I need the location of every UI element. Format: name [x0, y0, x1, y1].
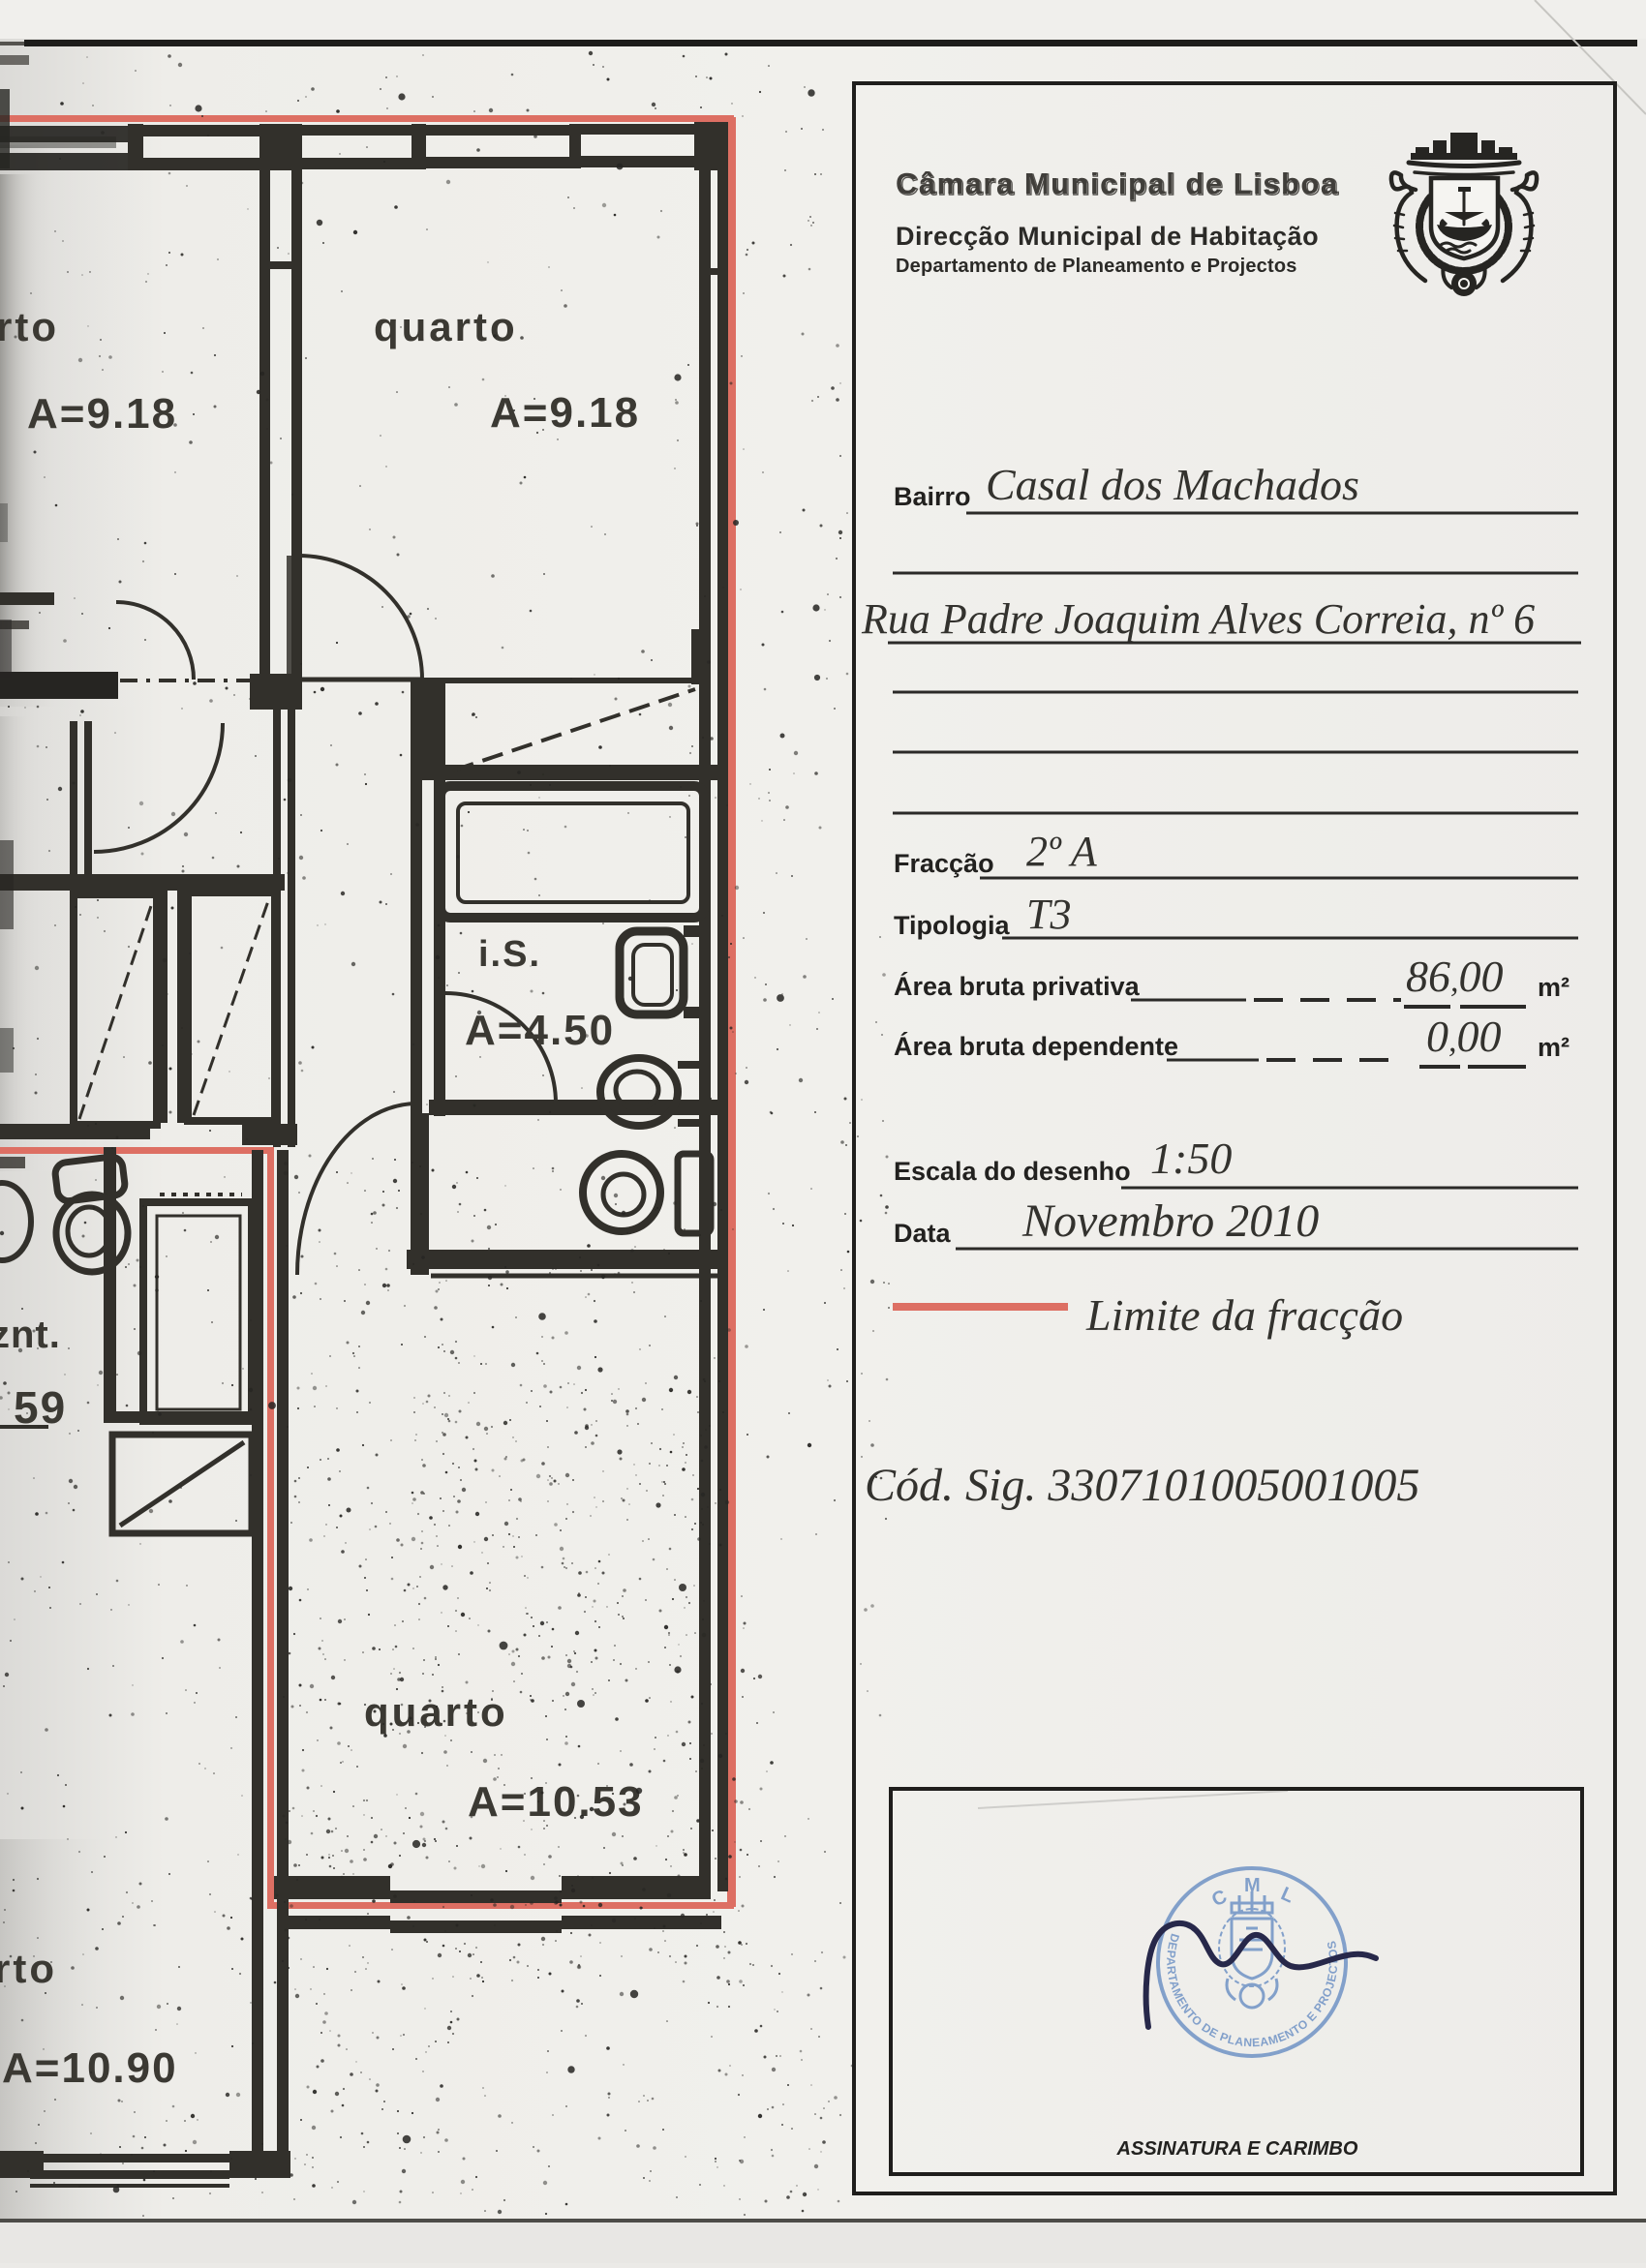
svg-text:Bairro: Bairro: [894, 482, 971, 511]
svg-text:Câmara Municipal de Lisboa: Câmara Municipal de Lisboa: [896, 166, 1339, 200]
svg-text:Fracção: Fracção: [894, 849, 994, 878]
svg-text:Área bruta dependente: Área bruta dependente: [894, 1031, 1178, 1061]
svg-text:1:50: 1:50: [1150, 1134, 1232, 1183]
svg-text:2º A: 2º A: [1026, 828, 1098, 875]
svg-text:Área bruta privativa: Área bruta privativa: [894, 971, 1141, 1001]
svg-text:rto: rto: [0, 304, 59, 349]
svg-text:rto: rto: [0, 1946, 57, 1991]
svg-text:znt.: znt.: [0, 1314, 61, 1356]
svg-text:Tipologia: Tipologia: [894, 911, 1010, 940]
svg-text:A=4.50: A=4.50: [465, 1007, 615, 1054]
svg-text:quarto: quarto: [364, 1689, 508, 1735]
svg-text:i.S.: i.S.: [478, 934, 541, 975]
svg-text:ASSINATURA E CARIMBO: ASSINATURA E CARIMBO: [1116, 2138, 1358, 2160]
svg-text:quarto: quarto: [374, 304, 518, 349]
svg-text:Rua Padre Joaquim Alves Correi: Rua Padre Joaquim Alves Correia, nº 6: [861, 595, 1535, 643]
svg-text:0,00: 0,00: [1426, 1012, 1502, 1061]
svg-text:Novembro 2010: Novembro 2010: [1021, 1195, 1319, 1247]
svg-text:A=10.53: A=10.53: [468, 1778, 644, 1826]
svg-text:Direcção Municipal de Habitaçã: Direcção Municipal de Habitação: [896, 222, 1319, 251]
svg-text:Data: Data: [894, 1219, 952, 1248]
svg-text:m²: m²: [1538, 1033, 1570, 1062]
svg-text:Departamento de Planeamento e: Departamento de Planeamento e Projectos: [896, 256, 1297, 277]
svg-text:Limite da fracção: Limite da fracção: [1085, 1290, 1403, 1340]
svg-text:A=10.90: A=10.90: [2, 2044, 178, 2092]
svg-text:m²: m²: [1538, 973, 1570, 1002]
svg-text:A=9.18: A=9.18: [490, 389, 640, 437]
svg-text:Casal dos Machados: Casal dos Machados: [986, 460, 1359, 509]
svg-text:Cód. Sig. 3307101005001005: Cód. Sig. 3307101005001005: [865, 1460, 1419, 1511]
svg-text:Escala do desenho: Escala do desenho: [894, 1157, 1131, 1186]
svg-text:A=9.18: A=9.18: [27, 390, 177, 438]
svg-text:T3: T3: [1026, 891, 1071, 938]
